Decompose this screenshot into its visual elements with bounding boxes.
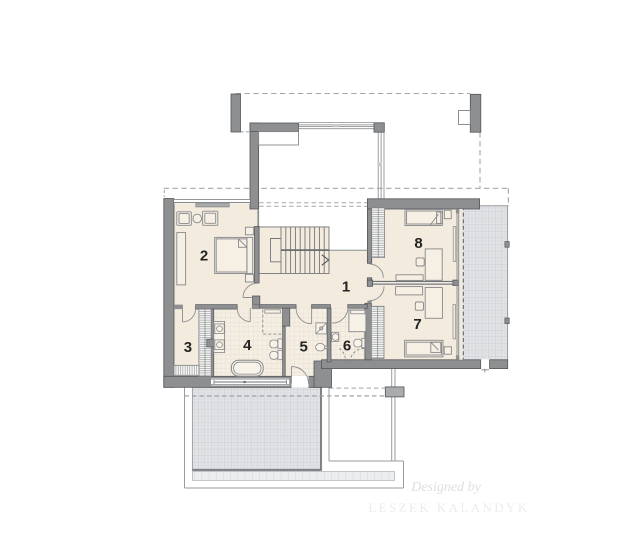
svg-text:3: 3 (184, 339, 192, 356)
svg-text:LESZEK KALANDYK: LESZEK KALANDYK (368, 500, 529, 515)
svg-text:5: 5 (300, 338, 308, 355)
svg-text:4: 4 (243, 337, 252, 354)
svg-text:7: 7 (413, 316, 421, 333)
svg-text:Designed by: Designed by (410, 480, 481, 495)
svg-text:8: 8 (414, 235, 422, 252)
svg-text:6: 6 (343, 337, 351, 354)
svg-text:2: 2 (200, 247, 208, 264)
svg-text:1: 1 (342, 278, 350, 295)
